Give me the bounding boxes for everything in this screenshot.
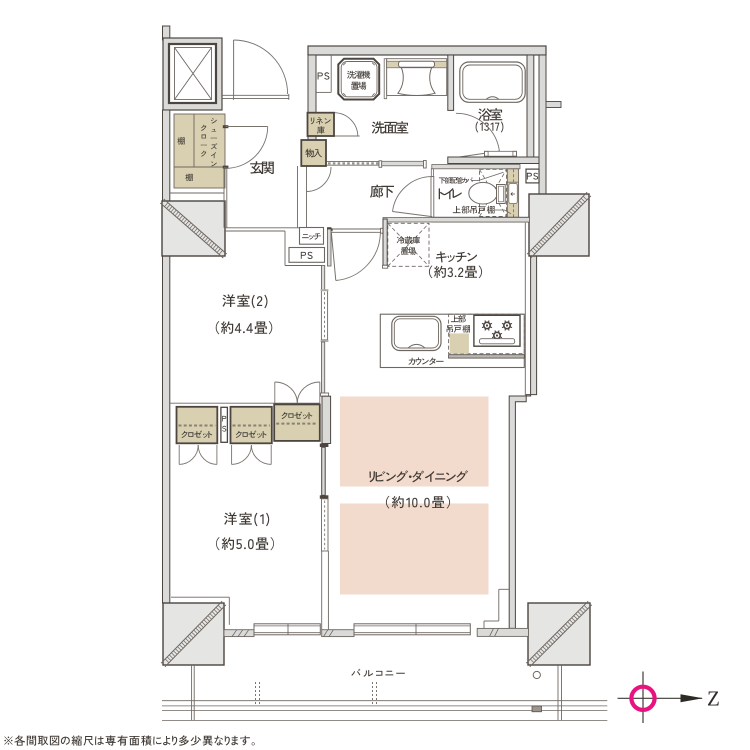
svg-text:Z: Z <box>707 687 720 711</box>
